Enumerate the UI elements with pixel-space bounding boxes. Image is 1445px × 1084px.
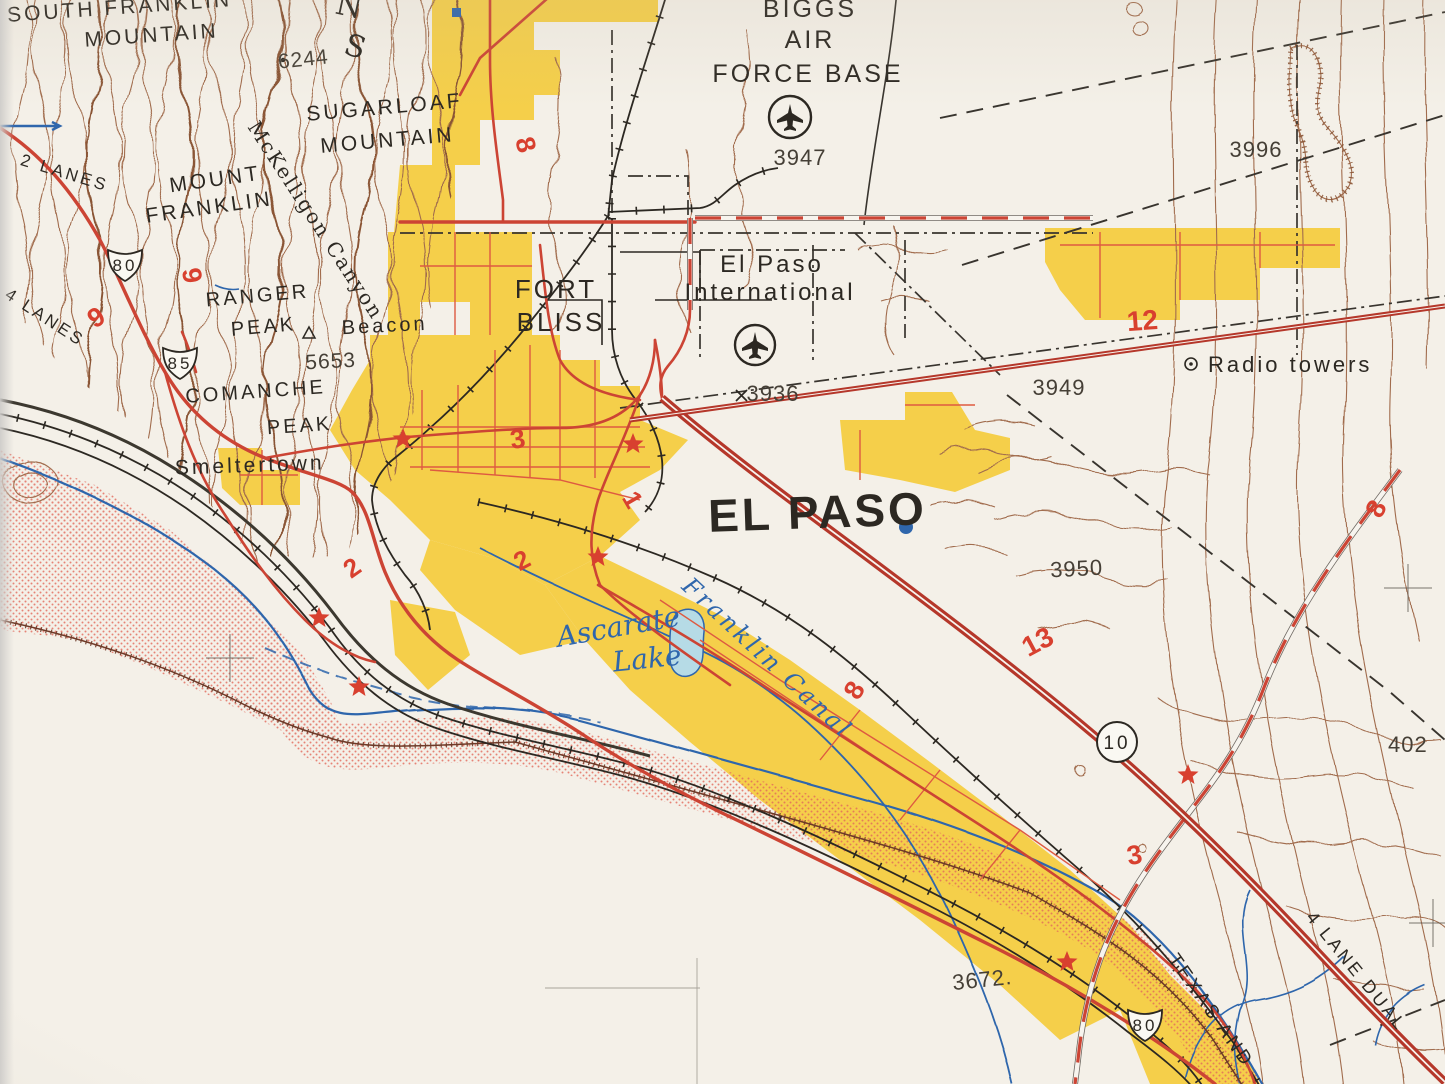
topo-map: 80 85 10 80 SOUTH FRANKLIN MOUNTAIN N S …: [0, 0, 1445, 1084]
label-route-13: 13: [1017, 621, 1059, 663]
label-elev-3996: 3996: [1230, 137, 1283, 162]
label-elev-3936: 3936: [747, 381, 800, 406]
label-ranger-1: RANGER: [205, 281, 310, 312]
label-elev-3949: 3949: [1033, 375, 1086, 400]
label-route-8a: 8: [509, 134, 542, 156]
label-elev-3947: 3947: [774, 145, 827, 170]
depression-pit: [1125, 2, 1353, 200]
us-80-south-number: 80: [1133, 1016, 1158, 1035]
label-ep-intl-1: El Paso: [720, 251, 824, 278]
us-80-shield: 80: [108, 250, 142, 281]
label-radio-towers: Radio towers: [1208, 352, 1372, 377]
label-route-9b: 9: [82, 301, 111, 334]
label-beacon: Beacon: [341, 313, 428, 339]
road-layer: [0, 0, 1445, 1084]
label-smeltertown: Smeltertown: [175, 451, 325, 479]
label-ep-intl-2: International: [684, 279, 855, 306]
label-comanche-2: PEAK: [266, 413, 333, 440]
blue-square-symbol: [452, 8, 461, 17]
label-4-lanes: 4 LANES: [2, 285, 89, 350]
label-el-paso: EL PASO: [707, 482, 927, 542]
airport-icon-el-paso-international: [735, 325, 775, 365]
us-80-shield-number: 80: [113, 256, 138, 275]
label-range-letter-n: N: [332, 0, 365, 27]
label-biggs-2: AIR: [785, 26, 836, 54]
label-route-12: 12: [1126, 304, 1159, 337]
label-elev-402: 402: [1388, 732, 1428, 757]
label-4-lane-dual: 4 LANE DUAL: [1302, 907, 1411, 1035]
interstate-10-number: 10: [1103, 733, 1130, 754]
label-south-franklin-2: MOUNTAIN: [84, 19, 220, 51]
map-photo: 80 85 10 80 SOUTH FRANKLIN MOUNTAIN N S …: [0, 0, 1445, 1084]
airport-icon-biggs: [769, 96, 811, 138]
label-route-2b: 2: [337, 551, 366, 584]
us-85-shield-number: 85: [168, 354, 193, 373]
label-route-9a: 9: [176, 265, 208, 285]
label-range-letter-s: S: [340, 27, 370, 67]
label-biggs-3: FORCE BASE: [712, 60, 903, 88]
label-elev-3950: 3950: [1050, 555, 1104, 583]
label-elev-5653: 5653: [305, 349, 357, 375]
interstate-10-shield: 10: [1097, 722, 1137, 762]
contour-lines-layer: [3, 0, 1445, 1084]
label-biggs-1: BIGGS: [763, 0, 857, 23]
label-comanche-1: COMANCHE: [185, 376, 327, 408]
radio-tower-icon: [1185, 358, 1197, 370]
label-fort-bliss-1: FORT: [515, 274, 597, 304]
label-mount-franklin-2: FRANKLIN: [144, 187, 274, 228]
label-fort-bliss-2: BLISS: [517, 307, 606, 337]
label-elev-3672: 3672.: [951, 964, 1013, 995]
label-ranger-2: PEAK: [230, 313, 297, 341]
